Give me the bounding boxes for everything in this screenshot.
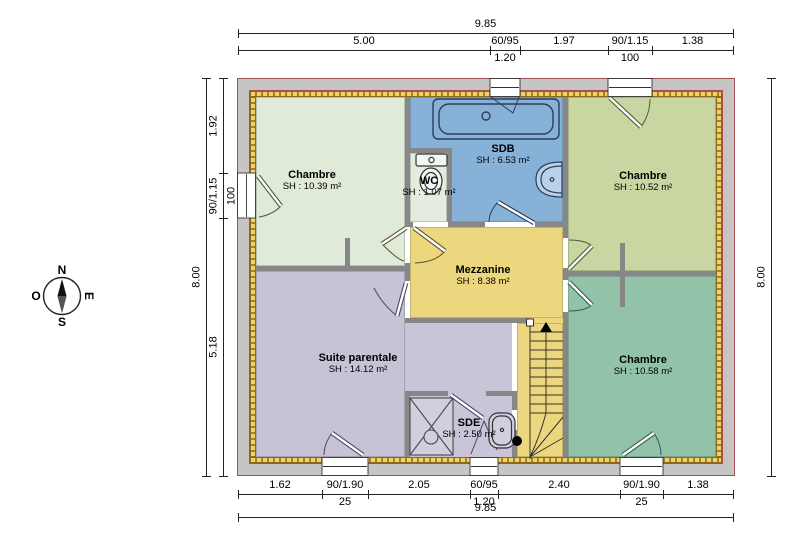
- room-name: WC: [402, 175, 455, 187]
- floor-plan-page: N S O E ChambreSH : 10.39 m²SDBSH : 6.53…: [0, 0, 800, 544]
- dim-line: [470, 494, 498, 495]
- compass-east-label: E: [82, 292, 96, 300]
- dim-tick: [368, 490, 369, 499]
- room-label-mezzanine: MezzanineSH : 8.38 m²: [455, 264, 510, 288]
- room-label-sde: SDESH : 2.50 m²: [442, 417, 495, 441]
- dim-tick: [767, 78, 776, 79]
- dim-text: 1.38: [682, 36, 703, 47]
- dim-tick: [733, 46, 734, 55]
- dim-tick: [202, 78, 211, 79]
- dim-tick: [219, 78, 228, 79]
- compass-icon: [44, 278, 81, 315]
- dim-line: [652, 50, 733, 51]
- dim-line: [498, 494, 620, 495]
- plan-vector-overlay: [0, 0, 800, 544]
- dim-tick: [608, 46, 609, 55]
- dim-text: 90/1.15: [612, 36, 649, 47]
- dim-line: [238, 50, 490, 51]
- dim-tick: [219, 476, 228, 477]
- dim-line: [771, 78, 772, 476]
- dim-tick: [238, 29, 239, 38]
- dim-tick: [238, 513, 239, 522]
- compass-west-label: O: [31, 289, 40, 303]
- dim-text: 8.00: [192, 266, 203, 287]
- dim-text: 1.38: [687, 480, 708, 491]
- room-area: SH : 1.07 m²: [402, 187, 455, 199]
- dim-text: 60/95: [491, 36, 519, 47]
- dim-line: [322, 494, 368, 495]
- dim-text: 1.62: [269, 480, 290, 491]
- dim-text: 25: [635, 497, 647, 508]
- dim-tick: [238, 490, 239, 499]
- room-area: SH : 10.52 m²: [614, 182, 673, 194]
- sdb-sink-icon: [536, 162, 562, 197]
- dim-line: [490, 50, 520, 51]
- dim-line: [620, 494, 663, 495]
- compass-south-label: S: [58, 315, 66, 329]
- dim-tick: [733, 29, 734, 38]
- dim-text: 2.40: [548, 480, 569, 491]
- room-area: SH : 8.38 m²: [455, 276, 510, 288]
- dim-line: [368, 494, 470, 495]
- dim-tick: [767, 476, 776, 477]
- dim-text: 90/1.15: [209, 177, 220, 214]
- dim-text: 1.20: [473, 497, 494, 508]
- room-name: SDE: [442, 417, 495, 429]
- room-label-chambre-br: ChambreSH : 10.58 m²: [614, 354, 673, 378]
- dim-line: [206, 78, 207, 476]
- room-label-suite: Suite parentaleSH : 14.12 m²: [319, 352, 398, 376]
- room-name: Mezzanine: [455, 264, 510, 276]
- dim-text: 1.92: [209, 115, 220, 136]
- dim-tick: [620, 490, 621, 499]
- dim-tick: [733, 490, 734, 499]
- dim-text: 100: [227, 186, 238, 204]
- door-pivot-dot: [512, 436, 522, 446]
- dim-line: [238, 517, 733, 518]
- room-area: SH : 2.50 m²: [442, 429, 495, 441]
- dim-tick: [498, 490, 499, 499]
- room-label-chambre-tr: ChambreSH : 10.52 m²: [614, 170, 673, 194]
- dim-text: 5.18: [209, 336, 220, 357]
- dim-text: 5.00: [353, 36, 374, 47]
- dim-tick: [490, 46, 491, 55]
- dim-tick: [470, 490, 471, 499]
- dim-line: [238, 494, 322, 495]
- room-label-sdb: SDBSH : 6.53 m²: [476, 143, 529, 167]
- dim-tick: [219, 218, 228, 219]
- room-label-chambre-tl: ChambreSH : 10.39 m²: [283, 169, 342, 193]
- dim-line: [238, 33, 733, 34]
- dim-line: [223, 218, 224, 476]
- dim-tick: [520, 46, 521, 55]
- room-area: SH : 14.12 m²: [319, 364, 398, 376]
- dim-tick: [238, 46, 239, 55]
- bathtub-icon: [433, 99, 559, 139]
- dim-tick: [733, 513, 734, 522]
- dim-tick: [663, 490, 664, 499]
- dim-tick: [652, 46, 653, 55]
- room-area: SH : 10.58 m²: [614, 366, 673, 378]
- stairs-icon: [512, 319, 563, 459]
- dim-line: [223, 173, 224, 218]
- dim-text: 60/95: [470, 480, 498, 491]
- room-area: SH : 10.39 m²: [283, 181, 342, 193]
- dim-line: [663, 494, 733, 495]
- dim-tick: [322, 490, 323, 499]
- dim-tick: [202, 476, 211, 477]
- dim-line: [520, 50, 608, 51]
- dim-text: 90/1.90: [327, 480, 364, 491]
- room-name: Chambre: [614, 170, 673, 182]
- dim-text: 1.97: [553, 36, 574, 47]
- dim-text: 25: [339, 497, 351, 508]
- dim-text: 2.05: [408, 480, 429, 491]
- room-name: Chambre: [614, 354, 673, 366]
- room-area: SH : 6.53 m²: [476, 155, 529, 167]
- dim-text: 8.00: [757, 266, 768, 287]
- dim-text: 100: [621, 53, 639, 64]
- dim-text: 1.20: [494, 53, 515, 64]
- room-name: Suite parentale: [319, 352, 398, 364]
- compass-north-label: N: [58, 263, 67, 277]
- room-label-wc: WCSH : 1.07 m²: [402, 175, 455, 199]
- room-name: SDB: [476, 143, 529, 155]
- dim-line: [223, 78, 224, 173]
- dim-tick: [219, 173, 228, 174]
- dim-text: 9.85: [475, 19, 496, 30]
- room-name: Chambre: [283, 169, 342, 181]
- dim-line: [608, 50, 652, 51]
- dim-text: 90/1.90: [623, 480, 660, 491]
